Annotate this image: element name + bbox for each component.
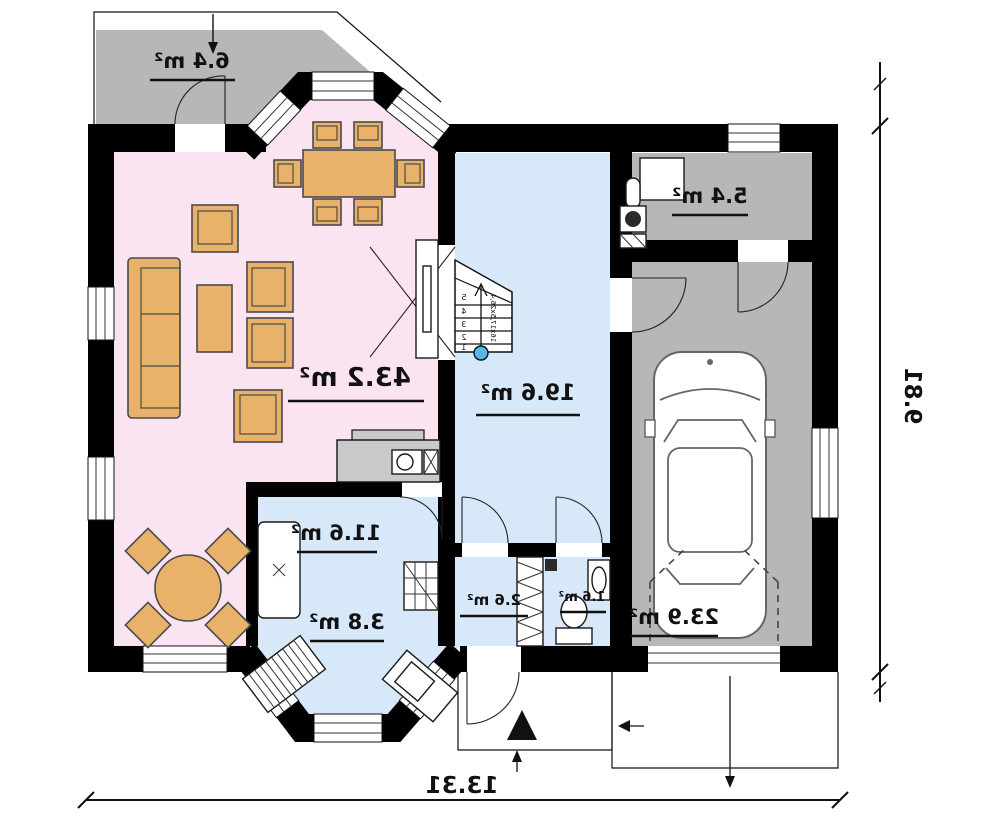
drain-icon xyxy=(620,234,646,248)
driveway-dim-arrow-down-icon xyxy=(725,676,735,788)
label-utility: 5.4 m² xyxy=(672,184,748,208)
floor-plan-svg: 1 2 3 4 5 16x17,5x26,4 xyxy=(0,0,1000,822)
garage-gate xyxy=(648,646,780,672)
dimension-height-label: 9.81 xyxy=(899,368,925,425)
kitchen-bay-window-bottom xyxy=(314,714,382,742)
entrance-area xyxy=(458,672,838,788)
round-table xyxy=(155,555,221,621)
armchair-top xyxy=(192,205,238,252)
coffee-table xyxy=(197,285,232,352)
stove-icon xyxy=(404,562,438,610)
car-icon xyxy=(645,352,775,638)
stair-step-3: 3 xyxy=(461,320,466,329)
counter-block xyxy=(337,430,440,482)
radiator-icon xyxy=(626,178,640,208)
boiler-icon xyxy=(620,206,646,232)
armchair-bottom xyxy=(234,390,282,442)
label-terrace: 6.4 m² xyxy=(154,49,230,73)
label-living: 43.2 m² xyxy=(299,363,411,393)
window-left-2 xyxy=(88,457,114,520)
sink-icon xyxy=(397,454,413,470)
entrance-arrow-icon xyxy=(507,710,537,740)
stair-start-dot xyxy=(474,346,488,360)
label-kitchen-bay: 3.8 m² xyxy=(309,610,385,634)
label-garage: 23.9 m² xyxy=(629,605,719,629)
armchair-right-2 xyxy=(247,318,293,368)
window-left-1 xyxy=(88,287,114,340)
driveway-outline xyxy=(612,672,838,768)
window-utility xyxy=(728,124,780,152)
entrance-door xyxy=(467,646,521,724)
dining-table xyxy=(303,150,395,197)
porch-dim-arrow-left-icon xyxy=(618,720,644,732)
dimension-width-label: 13.31 xyxy=(426,773,499,799)
dimension-right: 9.81 xyxy=(872,62,925,702)
floor-plan: 1 2 3 4 5 16x17,5x26,4 xyxy=(0,0,1000,822)
sofa xyxy=(128,258,180,418)
car-mirror-right xyxy=(765,420,775,437)
label-kitchen: 11.6 m² xyxy=(291,521,381,545)
bay-window-top xyxy=(312,72,374,100)
label-vestibule: 2.6 m² xyxy=(467,591,521,609)
stair-step-1: 1 xyxy=(461,343,466,352)
label-hall: 19.6 m² xyxy=(481,381,576,406)
car-mirror-left xyxy=(645,420,655,437)
garage-contents xyxy=(645,352,778,646)
window-bottom-left xyxy=(143,646,227,672)
armchair-right-1 xyxy=(247,262,293,312)
stair-note: 16x17,5x26,4 xyxy=(489,293,497,342)
window-garage xyxy=(812,428,838,518)
stair-step-2: 2 xyxy=(461,333,466,342)
stair-step-5: 5 xyxy=(461,293,466,302)
stair-step-4: 4 xyxy=(461,307,466,316)
vent-icon xyxy=(545,559,557,571)
porch-dim-arrow-up-icon xyxy=(512,750,522,772)
label-wc: 1.6 m² xyxy=(559,590,606,605)
